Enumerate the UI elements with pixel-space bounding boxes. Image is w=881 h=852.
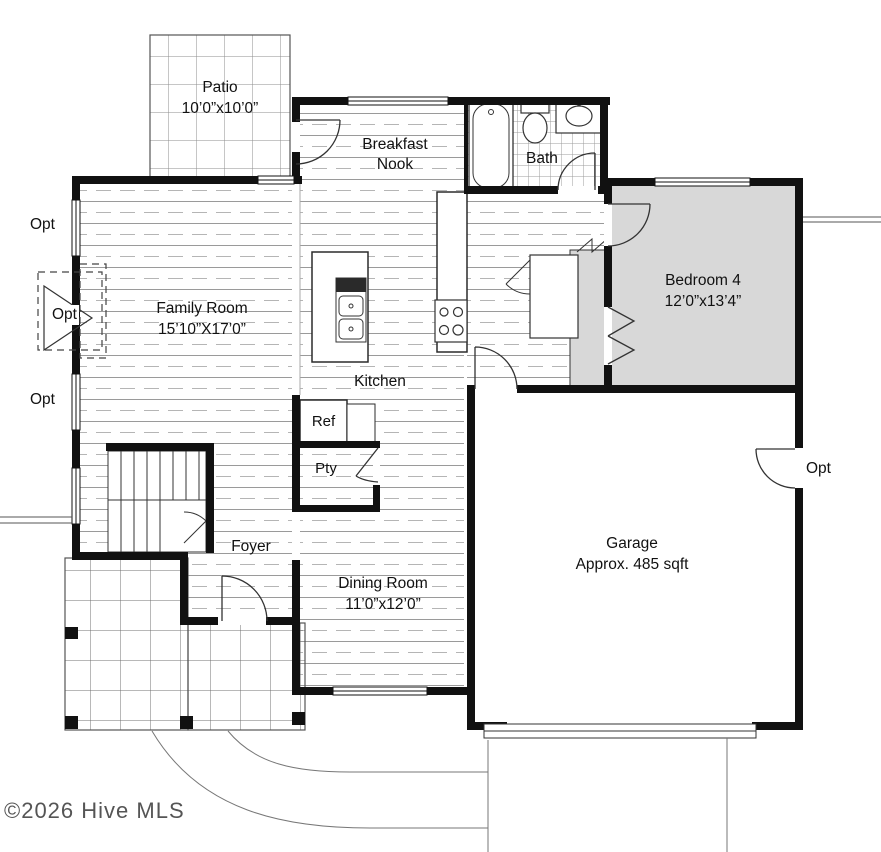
patio-label: Patio 10’0”x10’0” (150, 78, 290, 119)
window (72, 468, 80, 524)
family-room-label: Family Room 15’10”X17’0” (97, 299, 307, 340)
dining-room-label: Dining Room 11’0”x12’0” (302, 574, 464, 615)
kitchen-name: Kitchen (320, 372, 440, 392)
dining-room-name: Dining Room (302, 574, 464, 594)
porch-post (65, 627, 78, 639)
patio-dims: 10’0”x10’0” (150, 99, 290, 119)
bath-name: Bath (505, 149, 579, 169)
opt-text: Opt (30, 215, 70, 235)
bedroom-4-label: Bedroom 4 12’0”x13’4” (612, 271, 794, 312)
garage-name: Garage (520, 534, 744, 554)
opt-text: Opt (30, 390, 70, 410)
breakfast-nook-label: Breakfast Nook (345, 135, 445, 175)
mls-watermark: ©2026 Hive MLS (4, 798, 185, 824)
pantry-text: Pty (302, 459, 350, 479)
bathtub (469, 99, 513, 193)
island-sink (336, 278, 366, 342)
bath-label: Bath (505, 149, 579, 169)
bedroom-4-dims: 12’0”x13’4” (612, 292, 794, 312)
walkway-edge (152, 731, 488, 828)
window-optional (72, 200, 80, 256)
opt-window-top-label: Opt (30, 215, 70, 235)
foyer-name-text: Foyer (221, 537, 281, 557)
foyer-label: Foyer (221, 537, 281, 557)
window (348, 97, 448, 105)
refrigerator-label: Ref (301, 412, 346, 432)
kitchen-label: Kitchen (320, 372, 440, 392)
breakfast-nook-name: Breakfast Nook (345, 135, 445, 175)
pantry-label: Pty (302, 459, 350, 479)
bedroom-4-name: Bedroom 4 (612, 271, 794, 291)
family-room-dims: 15’10”X17’0” (97, 320, 307, 340)
cooktop (435, 300, 467, 342)
garage-dims: Approx. 485 sqft (520, 555, 744, 575)
opt-text: Opt (52, 305, 77, 325)
porch-post (292, 712, 305, 725)
patio-name: Patio (150, 78, 290, 98)
opt-window-bottom-label: Opt (30, 390, 70, 410)
garage-side-door-optional (756, 449, 795, 488)
vanity-sink (556, 101, 602, 133)
staircase (108, 451, 206, 552)
window-optional (72, 374, 80, 430)
floor-plan: Patio 10’0”x10’0” Breakfast Nook Bath Be… (0, 0, 881, 852)
opt-fireplace-label: Opt (50, 305, 79, 325)
opt-garage-door-label: Opt (806, 459, 846, 479)
window (258, 176, 294, 184)
porch-post (65, 716, 78, 729)
floor-plan-drawing (0, 0, 881, 852)
opt-text: Opt (806, 459, 846, 479)
refrigerator-text: Ref (301, 412, 346, 432)
walkway-edge (228, 731, 488, 772)
counter-cabinet (347, 404, 375, 443)
dining-room-dims: 11’0”x12’0” (302, 595, 464, 615)
garage-label: Garage Approx. 485 sqft (520, 534, 744, 575)
toilet (521, 101, 549, 143)
family-room-name: Family Room (97, 299, 307, 319)
window (655, 178, 750, 186)
porch-post (180, 716, 193, 729)
hall-closet (530, 255, 578, 338)
window (333, 687, 427, 695)
